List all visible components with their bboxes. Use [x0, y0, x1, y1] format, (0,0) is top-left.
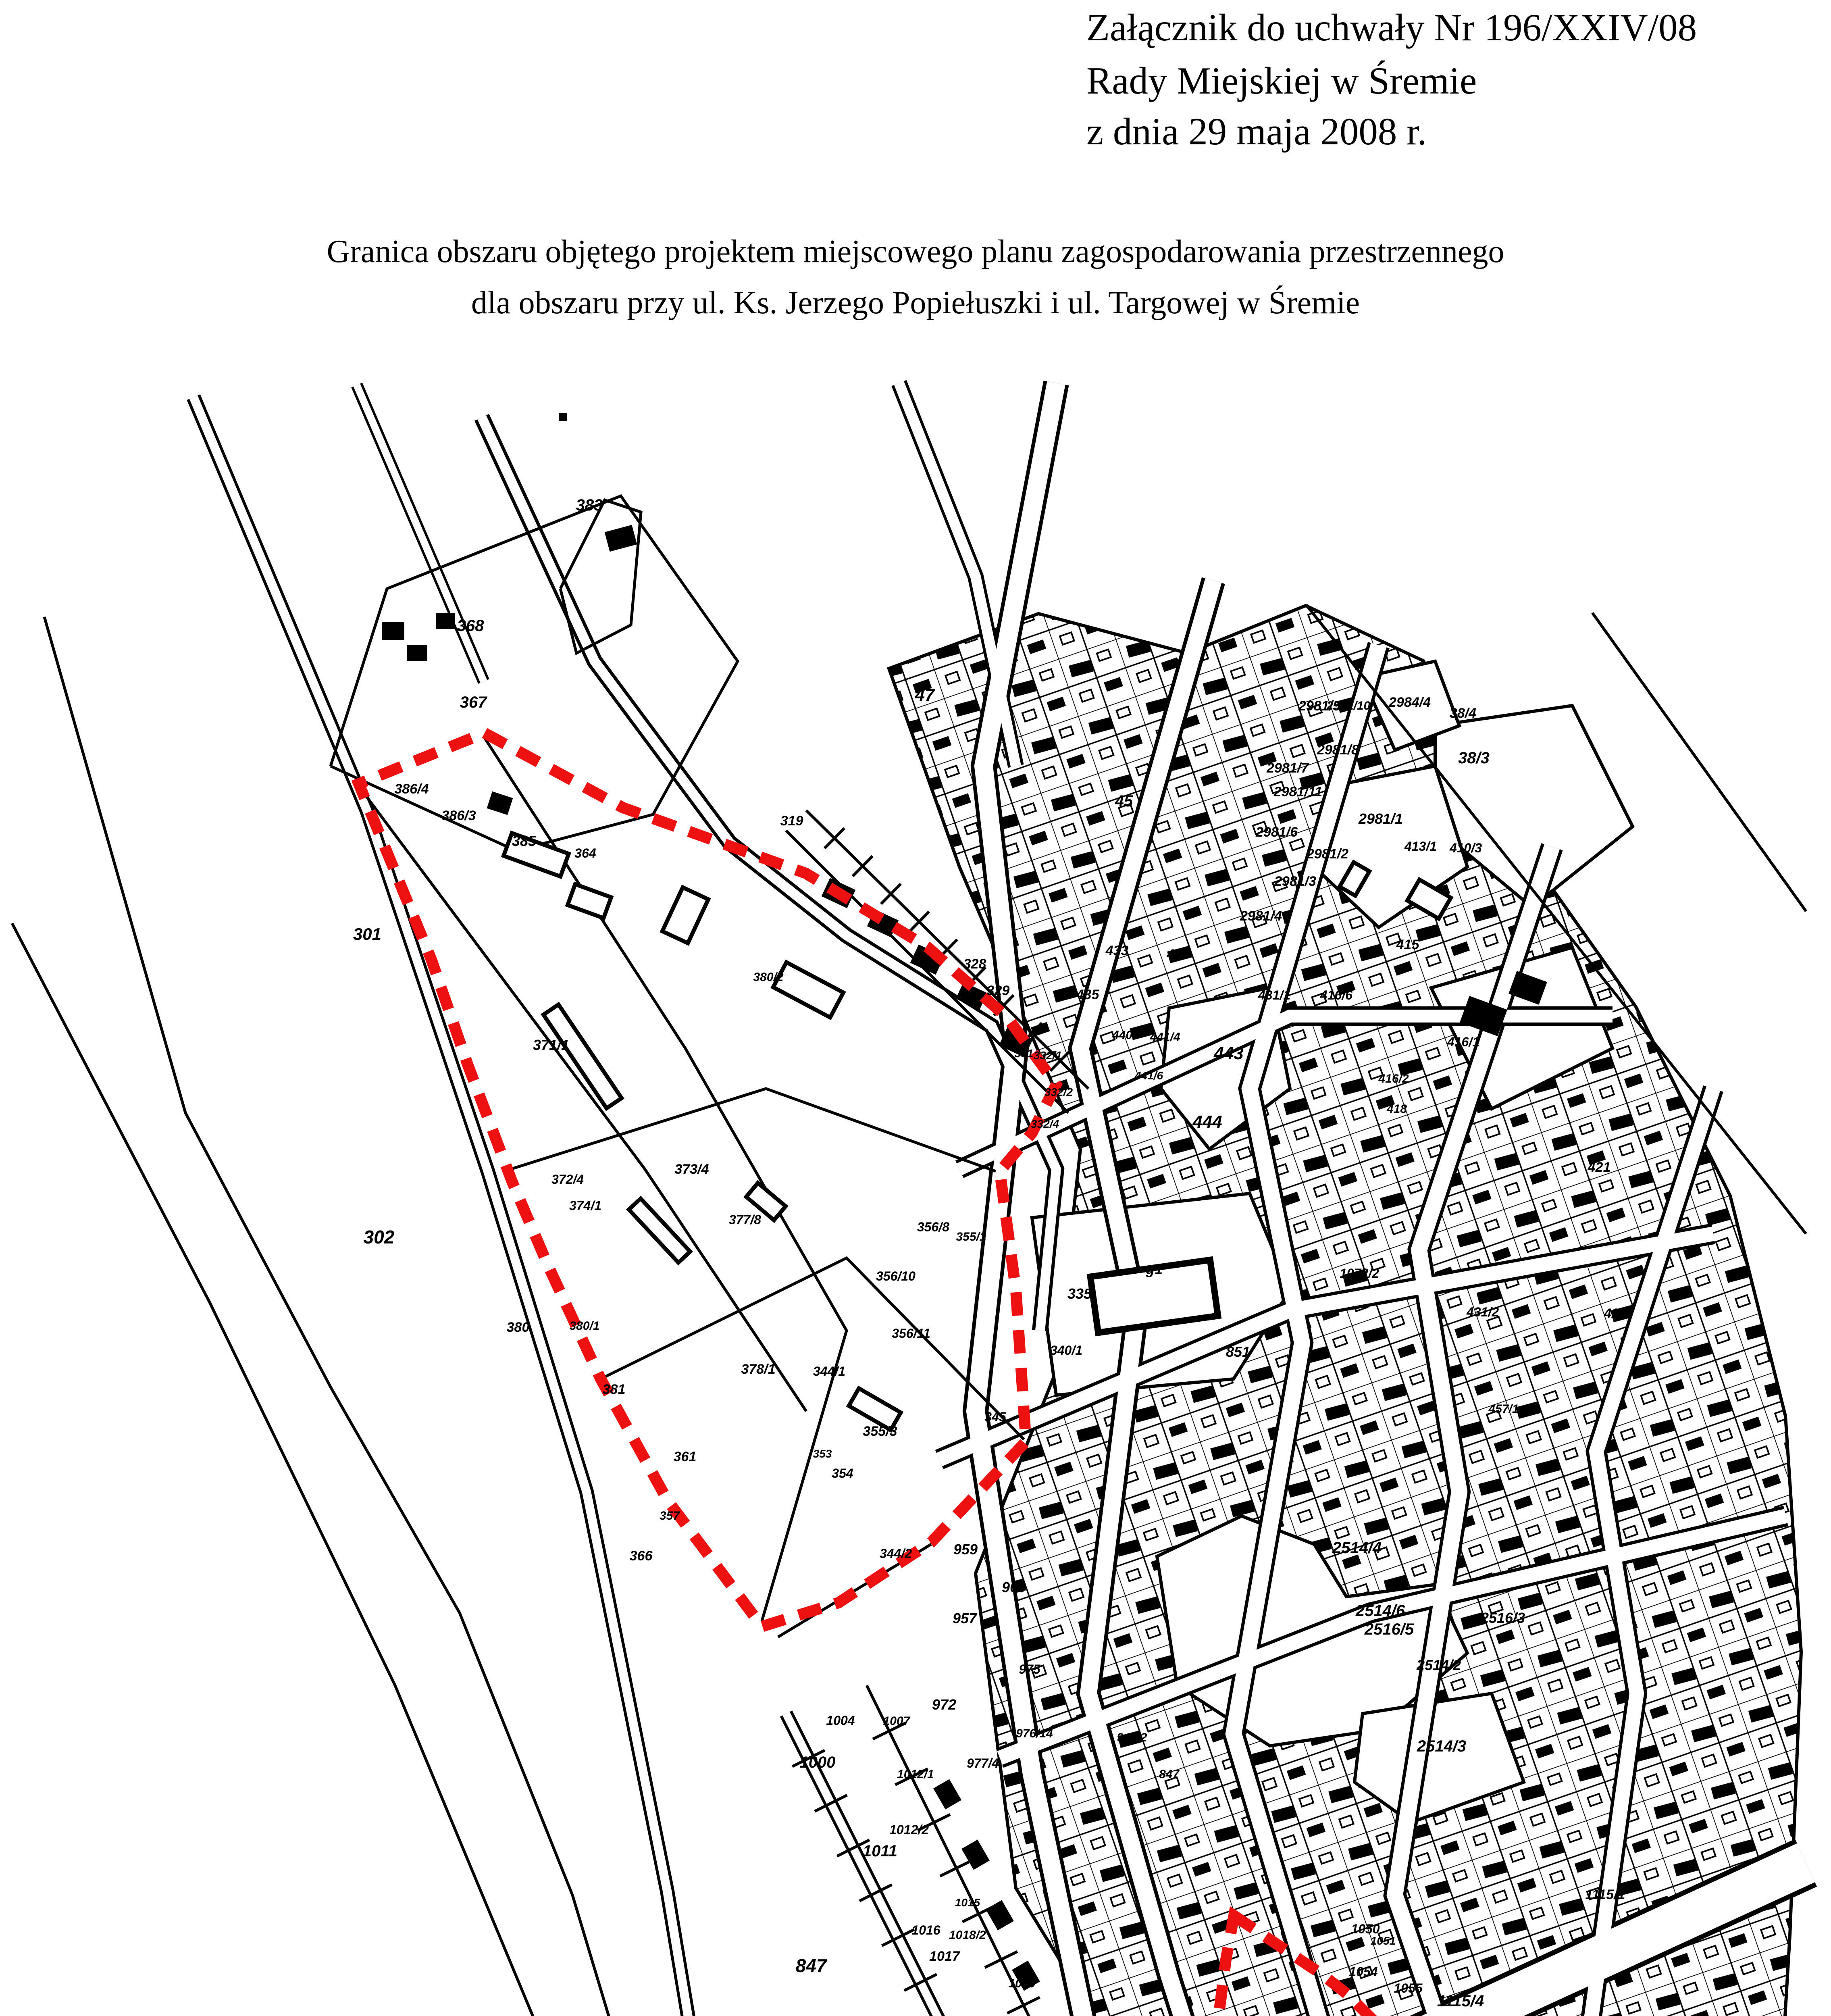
parcel-label: 354 [832, 1466, 853, 1481]
parcel-label: 367 [460, 694, 487, 711]
cadastral-map-canvas: 3833683674745302301386/4386/3385364371/1… [0, 0, 1831, 2016]
parcel-label: 1018/2 [949, 1929, 986, 1942]
building [936, 1782, 959, 1806]
parcel-label: 47 [915, 685, 936, 705]
parcel-label: 2514/3 [1417, 1737, 1466, 1755]
parcel-label: 377/8 [729, 1212, 761, 1227]
parcel-label: 421 [1588, 1160, 1611, 1175]
building [568, 884, 611, 918]
parcel-label: 960 [1002, 1579, 1026, 1595]
parcel-label: 332/4 [1031, 1118, 1059, 1130]
parcel-label: 946/2 [1117, 1731, 1147, 1744]
parcel-label: 418 [1386, 1102, 1407, 1116]
parcel-label: 2981/11 [1273, 784, 1322, 800]
parcel-label: 435 [1076, 987, 1100, 1002]
parcel-label: 1019 [1009, 1977, 1036, 1990]
parcel-label: 2984/4 [1388, 695, 1431, 710]
parcel-label: 374/1 [569, 1198, 601, 1213]
parcel-label: 441/4 [1149, 1031, 1180, 1044]
parcel-label: 335 [1067, 1285, 1092, 1302]
parcel-label: 416/2 [1378, 1072, 1409, 1085]
parcel-label: 344/2 [880, 1546, 912, 1561]
parcel-label: 457/1 [1488, 1402, 1519, 1416]
parcel-label: 851 [1226, 1343, 1250, 1360]
parcel-label: 444 [1192, 1112, 1222, 1132]
parcel-label: 957 [953, 1610, 978, 1627]
parcel-label: 433 [1105, 943, 1129, 958]
parcel-label: 386/4 [394, 781, 429, 797]
parcel-label: 340/1 [1050, 1343, 1082, 1358]
parcel-label: 372/4 [551, 1172, 584, 1187]
parcel-label: 378/1 [741, 1362, 775, 1377]
parcel-label: 2981/10 [1326, 699, 1371, 712]
tick [1007, 1997, 1040, 2014]
parcel-label: 416/6 [1320, 988, 1352, 1002]
parcel-label: 2514/4 [1332, 1539, 1382, 1557]
boundary-line [359, 786, 806, 1411]
parcel-label: 1017 [929, 1949, 961, 1964]
parcel-label: 361 [674, 1449, 697, 1464]
building [607, 527, 635, 549]
building [384, 624, 402, 638]
tick [940, 1860, 973, 1876]
parcel-label: 319 [780, 813, 803, 829]
parcel-label: 443 [1213, 1043, 1243, 1063]
parcel-label: 385 [512, 833, 537, 849]
building [561, 415, 565, 419]
parcel-label: 415 [1396, 937, 1420, 952]
parcel-label: 368 [457, 617, 484, 635]
parcel-label: 2514/2 [1416, 1657, 1461, 1673]
parcel-label: 413/1 [1404, 839, 1437, 854]
parcel-label: 2981/3 [1274, 874, 1316, 889]
parcel-label: 332/2 [1045, 1086, 1073, 1098]
boundary-line [1592, 613, 1806, 911]
building [988, 1903, 1011, 1927]
parcel-label: 1012/1 [897, 1768, 934, 1781]
parcel-label: 1055 [1394, 1981, 1423, 1995]
parcel-label: 2981/2 [1306, 846, 1348, 862]
parcel-label: 356/11 [892, 1326, 930, 1341]
parcel-label: 1007 [883, 1714, 911, 1728]
parcel-label: 355/3 [863, 1424, 897, 1439]
parcel-label: 1015 [955, 1896, 980, 1909]
parcel-label: 1016 [911, 1923, 940, 1937]
parcel-label: 373/4 [674, 1162, 709, 1177]
parcel-label: 2981/1 [1358, 810, 1403, 827]
parcel-label: 1051 [1371, 1935, 1396, 1947]
parcel-label: 356/10 [876, 1269, 915, 1283]
parcel-label: 383 [576, 496, 603, 514]
parcel-label: 2981/6 [1255, 825, 1298, 840]
parcel-label: 1011 [863, 1842, 897, 1860]
parcel-label: 1115/4 [1437, 1992, 1484, 2010]
building [662, 887, 708, 943]
parcel-label: 1000 [800, 1754, 836, 1771]
road-core [357, 385, 484, 681]
parcel-label: 2516/3 [1480, 1610, 1525, 1626]
parcel-label: 356/8 [917, 1220, 949, 1234]
parcel-label: 2981/4 [1240, 908, 1282, 924]
parcel-label: 975 [1019, 1662, 1041, 1677]
parcel-label: 431/2 [1466, 1305, 1499, 1319]
parcel-label: 438 [1167, 947, 1190, 962]
parcel-label: 431/1 [1258, 988, 1290, 1002]
parcel-label: 1012/2 [889, 1822, 929, 1837]
parcel-label: 380/1 [569, 1319, 599, 1333]
parcel-label: 355/1 [956, 1230, 986, 1243]
parcel-label: 380/2 [753, 971, 783, 984]
parcel-label: 1020 [968, 2013, 1001, 2016]
building [543, 1004, 622, 1108]
parcel-label: 416/1 [1447, 1035, 1479, 1049]
parcel-label: 366 [630, 1548, 653, 1564]
parcel-label: 329 [987, 983, 1010, 998]
parcel-label: 441/6 [1134, 1069, 1163, 1082]
boundary-line [44, 617, 726, 2016]
parcel-label: 328 [963, 956, 986, 972]
parcel-label: 301 [353, 925, 381, 943]
parcel-label: 353 [813, 1447, 832, 1460]
parcel-label: 45 [1115, 792, 1133, 810]
parcel-label: 357 [660, 1509, 680, 1522]
parcel-label: 1054 [1349, 1964, 1377, 1979]
parcel-label: 345 [984, 1410, 1007, 1424]
plan-boundary-main [359, 733, 1056, 1627]
boundary-line [12, 923, 597, 2016]
parcel-label: 331 [1015, 1047, 1034, 1060]
parcel-label: 410/3 [1449, 841, 1482, 855]
parcel-label: 1050 [1351, 1922, 1379, 1936]
parcel-label: 364 [574, 846, 596, 860]
page-title-line1: Granica obszaru objętego projektem miejs… [327, 234, 1504, 269]
attachment-header-line3: z dnia 29 maja 2008 r. [1086, 110, 1427, 153]
parcel-label: g1 [1145, 1261, 1163, 1277]
parcel-label: 38/3 [1458, 749, 1490, 767]
parcel-label: 381 [603, 1382, 626, 1397]
building [409, 647, 425, 659]
parcel-label: 302 [364, 1227, 395, 1248]
parcel-label: 977/4 [967, 1756, 999, 1770]
parcel-label: 1072/2 [1340, 1266, 1379, 1281]
parcel-label: 1004 [826, 1713, 855, 1728]
planning-map-page: { "header": { "line1": "Załącznik do uch… [0, 0, 1831, 2016]
parcel-label: 424 [1604, 1306, 1627, 1321]
parcel-label: 344/1 [813, 1364, 845, 1379]
building [629, 1199, 690, 1263]
boundary-line [601, 1258, 1024, 1439]
parcel-label: 2514/6 [1355, 1602, 1405, 1620]
parcel-label: 380 [507, 1320, 530, 1335]
parcel-label: 371/1 [533, 1037, 569, 1053]
attachment-header-line1: Załącznik do uchwały Nr 196/XXIV/08 [1086, 6, 1697, 49]
parcel-label: 847 [796, 1955, 828, 1976]
page-title-line2: dla obszaru przy ul. Ks. Jerzego Popiełu… [471, 285, 1360, 321]
tick [985, 1951, 1017, 1968]
parcel-label: 38/4 [1450, 706, 1476, 721]
parcel-label: 386/3 [441, 808, 476, 823]
parcel-label: 959 [953, 1541, 978, 1558]
parcel-label: 1115/1 [1585, 1887, 1625, 1902]
parcel-label: 2981/7 [1266, 760, 1309, 776]
parcel-label: 2516/5 [1364, 1620, 1414, 1638]
parcel-label: 440 [1112, 1029, 1132, 1042]
parcel-label: 2981/8 [1317, 742, 1359, 758]
parcel-label: 976/14 [1016, 1727, 1053, 1740]
attachment-header-line2: Rady Miejskiej w Śremie [1086, 59, 1477, 102]
parcel-label: 847 [1159, 1768, 1180, 1781]
parcel-label: 332/1 [1034, 1049, 1062, 1062]
building [773, 962, 843, 1018]
building [489, 794, 510, 812]
parcel-label: 972 [932, 1696, 956, 1713]
building [438, 615, 453, 627]
